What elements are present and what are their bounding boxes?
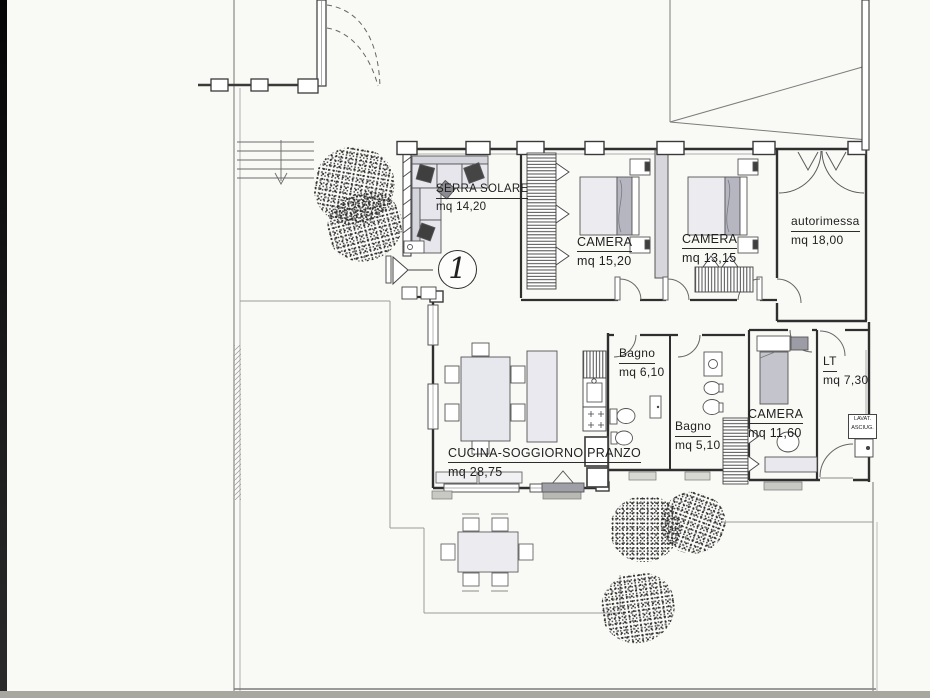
gate-swing-arcs — [327, 5, 380, 88]
room-area: mq 13,15 — [682, 250, 737, 266]
room-label-bagno2: Bagno mq 5,10 — [675, 419, 720, 453]
room-name: CAMERA — [577, 234, 632, 252]
scan-edge-bottom — [0, 691, 930, 698]
bathroom1-fixtures — [610, 409, 635, 446]
room-name: LT — [823, 354, 837, 372]
room-area: mq 5,10 — [675, 438, 720, 454]
bathroom2-fixtures — [703, 352, 723, 415]
bed-camera3 — [757, 336, 808, 404]
room-area: mq 6,10 — [619, 365, 664, 381]
room-label-camera3: CAMERA mq 11,60 — [748, 406, 803, 442]
room-label-autorimessa: autorimessa mq 18,00 — [791, 214, 860, 248]
dining-table — [445, 343, 525, 454]
wardrobe-camera1 — [527, 153, 569, 289]
room-label-serra: SERRA SOLARE mq 14,20 — [436, 182, 528, 215]
room-name: Bagno — [619, 346, 655, 364]
appliance-label-box: LAVAT. ASCIUG. — [848, 414, 877, 439]
room-area: mq 28,75 — [448, 464, 641, 480]
scan-edge-left — [0, 0, 7, 692]
room-name: Bagno — [675, 419, 711, 437]
driveway-ramp — [670, 0, 868, 140]
glazed-wall — [403, 151, 411, 256]
room-label-cucina: CUCINA-SOGGIORNO PRANZO mq 28,75 — [448, 445, 641, 481]
upper-left-walls — [198, 0, 326, 93]
appliance-label-line2: ASCIUG. — [851, 425, 874, 431]
room-area: mq 7,30 — [823, 373, 868, 389]
unit-number-marker: 1 — [438, 250, 477, 289]
kitchen-island — [527, 351, 557, 442]
room-area: mq 18,00 — [791, 233, 860, 249]
floor-plan-page: SERRA SOLARE mq 14,20 CAMERA mq 15,20 CA… — [0, 0, 930, 698]
appliance-label-line1: LAVAT. — [854, 416, 871, 422]
room-label-camera2: CAMERA mq 13,15 — [682, 231, 737, 267]
room-area: mq 15,20 — [577, 253, 632, 269]
laundry-appliance — [855, 439, 873, 457]
room-area: mq 11,60 — [748, 425, 803, 441]
room-name: CAMERA — [748, 406, 803, 424]
outdoor-table — [441, 514, 533, 591]
room-name: CUCINA-SOGGIORNO PRANZO — [448, 445, 641, 463]
room-label-bagno1: Bagno mq 6,10 — [619, 346, 664, 380]
room-name: autorimessa — [791, 214, 860, 232]
room-label-camera1: CAMERA mq 15,20 — [577, 234, 632, 270]
stairs — [237, 140, 314, 184]
room-name: SERRA SOLARE — [436, 182, 528, 199]
entrance-arrow — [386, 256, 436, 299]
room-label-lt: LT mq 7,30 — [823, 354, 868, 388]
garage-door — [779, 151, 864, 193]
partition-wall — [655, 150, 668, 278]
plan-drawing — [0, 0, 930, 698]
room-area: mq 14,20 — [436, 200, 528, 215]
room-name: CAMERA — [682, 231, 737, 249]
